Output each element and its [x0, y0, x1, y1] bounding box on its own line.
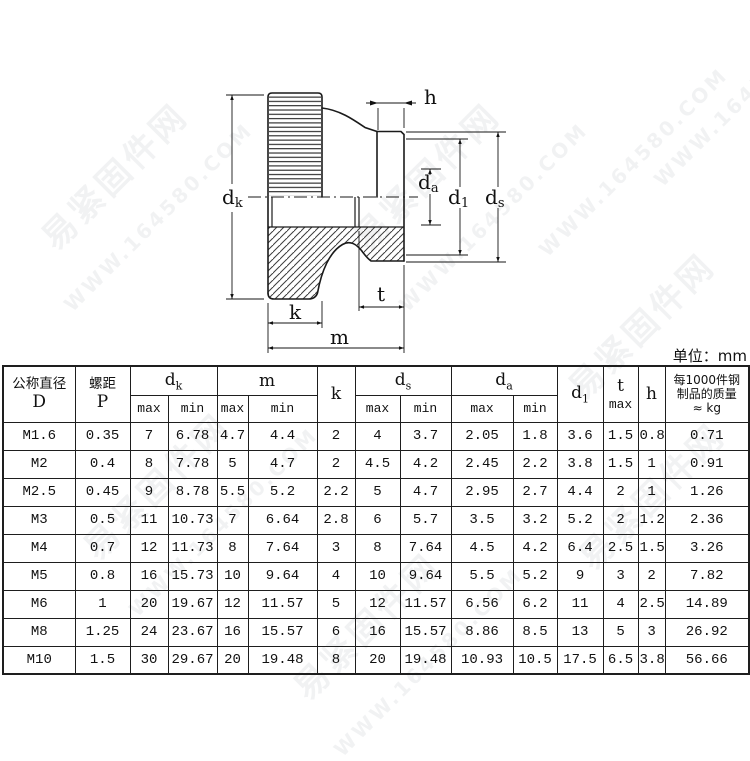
value-cell: 12: [130, 534, 168, 562]
header-nominal-diameter: 公称直径 D: [3, 366, 75, 422]
spec-table-body: M1.60.3576.784.74.4243.72.051.83.61.50.8…: [3, 422, 749, 674]
value-cell: 7.82: [665, 562, 749, 590]
thread-lines: [268, 197, 404, 227]
value-cell: 4.2: [400, 450, 451, 478]
value-cell: 3.6: [557, 422, 603, 450]
table-row: M101.53029.672019.4882019.4810.9310.517.…: [3, 646, 749, 674]
header-mass-line2: 制品的质量: [667, 387, 748, 401]
value-cell: 1.5: [75, 646, 130, 674]
header-m-max: max: [217, 395, 248, 422]
value-cell: 1.5: [603, 450, 638, 478]
value-cell: 5: [355, 478, 400, 506]
value-cell: 2.2: [317, 478, 355, 506]
value-cell: 2.2: [513, 450, 557, 478]
header-t-max: max: [605, 397, 637, 412]
value-cell: 19.48: [400, 646, 451, 674]
header-ds-max: max: [355, 395, 400, 422]
value-cell: 11.73: [168, 534, 217, 562]
value-cell: 5: [603, 618, 638, 646]
header-dk-min: min: [168, 395, 217, 422]
value-cell: 0.7: [75, 534, 130, 562]
header-mass: 每1000件钢 制品的质量 ≈ kg: [665, 366, 749, 422]
value-cell: 4.7: [248, 450, 317, 478]
label-h: h: [424, 85, 437, 109]
value-cell: 30: [130, 646, 168, 674]
value-cell: 23.67: [168, 618, 217, 646]
value-cell: 4.5: [451, 534, 513, 562]
value-cell: 19.48: [248, 646, 317, 674]
label-m: m: [330, 325, 349, 349]
size-cell: M2: [3, 450, 75, 478]
value-cell: 2.5: [638, 590, 665, 618]
value-cell: 8.86: [451, 618, 513, 646]
value-cell: 9.64: [400, 562, 451, 590]
value-cell: 10.93: [451, 646, 513, 674]
table-row: M81.252423.671615.5761615.578.868.513532…: [3, 618, 749, 646]
value-cell: 11.57: [400, 590, 451, 618]
value-cell: 2: [603, 506, 638, 534]
value-cell: 29.67: [168, 646, 217, 674]
header-pitch: 螺距 P: [75, 366, 130, 422]
header-pitch-cn: 螺距: [77, 376, 129, 392]
value-cell: 10.5: [513, 646, 557, 674]
value-cell: 2.7: [513, 478, 557, 506]
value-cell: 14.89: [665, 590, 749, 618]
header-t: t max: [603, 366, 638, 422]
label-da: da: [418, 170, 439, 196]
value-cell: 2.8: [317, 506, 355, 534]
technical-drawing: dk k m t h da d1 ds: [0, 0, 750, 362]
value-cell: 2.05: [451, 422, 513, 450]
unit-label: 单位：mm: [641, 345, 747, 365]
value-cell: 4: [317, 562, 355, 590]
value-cell: 0.5: [75, 506, 130, 534]
header-da-min: min: [513, 395, 557, 422]
header-dk-max: max: [130, 395, 168, 422]
value-cell: 1: [638, 478, 665, 506]
value-cell: 5: [317, 590, 355, 618]
value-cell: 4.5: [355, 450, 400, 478]
value-cell: 2.36: [665, 506, 749, 534]
value-cell: 5.2: [513, 562, 557, 590]
value-cell: 0.45: [75, 478, 130, 506]
value-cell: 11: [130, 506, 168, 534]
value-cell: 8: [130, 450, 168, 478]
value-cell: 9: [130, 478, 168, 506]
value-cell: 4.4: [248, 422, 317, 450]
value-cell: 7: [130, 422, 168, 450]
value-cell: 26.92: [665, 618, 749, 646]
value-cell: 0.71: [665, 422, 749, 450]
header-group-dk: dk: [130, 366, 217, 395]
header-m-min: min: [248, 395, 317, 422]
value-cell: 11.57: [248, 590, 317, 618]
table-row: M2.50.4598.785.55.22.254.72.952.74.4211.…: [3, 478, 749, 506]
size-cell: M2.5: [3, 478, 75, 506]
size-cell: M3: [3, 506, 75, 534]
table-row: M50.81615.73109.644109.645.55.29327.82: [3, 562, 749, 590]
table-row: M612019.671211.5751211.576.566.21142.514…: [3, 590, 749, 618]
value-cell: 15.73: [168, 562, 217, 590]
header-pitch-symbol: P: [77, 392, 129, 412]
value-cell: 2.45: [451, 450, 513, 478]
value-cell: 12: [217, 590, 248, 618]
value-cell: 1.26: [665, 478, 749, 506]
value-cell: 19.67: [168, 590, 217, 618]
value-cell: 1.5: [603, 422, 638, 450]
value-cell: 1.25: [75, 618, 130, 646]
value-cell: 8.78: [168, 478, 217, 506]
size-cell: M10: [3, 646, 75, 674]
value-cell: 15.57: [400, 618, 451, 646]
label-dk: dk: [222, 185, 243, 211]
value-cell: 20: [217, 646, 248, 674]
value-cell: 1.2: [638, 506, 665, 534]
table-row: M20.487.7854.724.54.22.452.23.81.510.91: [3, 450, 749, 478]
value-cell: 5: [217, 450, 248, 478]
value-cell: 8.5: [513, 618, 557, 646]
value-cell: 6: [355, 506, 400, 534]
knurl-pattern: [269, 96, 321, 196]
value-cell: 2.95: [451, 478, 513, 506]
value-cell: 6.4: [557, 534, 603, 562]
value-cell: 15.57: [248, 618, 317, 646]
value-cell: 17.5: [557, 646, 603, 674]
label-t: t: [377, 282, 385, 306]
label-d1: d1: [448, 185, 469, 211]
value-cell: 1: [638, 450, 665, 478]
value-cell: 6.5: [603, 646, 638, 674]
value-cell: 2: [317, 422, 355, 450]
size-cell: M6: [3, 590, 75, 618]
value-cell: 16: [217, 618, 248, 646]
value-cell: 3.7: [400, 422, 451, 450]
value-cell: 0.4: [75, 450, 130, 478]
value-cell: 10: [217, 562, 248, 590]
value-cell: 3: [603, 562, 638, 590]
value-cell: 2: [317, 450, 355, 478]
value-cell: 3.2: [513, 506, 557, 534]
value-cell: 9: [557, 562, 603, 590]
value-cell: 7.64: [248, 534, 317, 562]
value-cell: 3.5: [451, 506, 513, 534]
value-cell: 3.26: [665, 534, 749, 562]
value-cell: 12: [355, 590, 400, 618]
label-k: k: [289, 300, 302, 324]
value-cell: 13: [557, 618, 603, 646]
size-cell: M5: [3, 562, 75, 590]
value-cell: 8: [317, 646, 355, 674]
value-cell: 11: [557, 590, 603, 618]
value-cell: 5.2: [557, 506, 603, 534]
value-cell: 24: [130, 618, 168, 646]
size-cell: M1.6: [3, 422, 75, 450]
value-cell: 5.2: [248, 478, 317, 506]
header-d1: d1: [557, 366, 603, 422]
value-cell: 9.64: [248, 562, 317, 590]
value-cell: 7: [217, 506, 248, 534]
header-ds-min: min: [400, 395, 451, 422]
value-cell: 10: [355, 562, 400, 590]
value-cell: 8: [217, 534, 248, 562]
size-cell: M4: [3, 534, 75, 562]
value-cell: 10.73: [168, 506, 217, 534]
value-cell: 3: [317, 534, 355, 562]
value-cell: 7.64: [400, 534, 451, 562]
header-group-m: m: [217, 366, 317, 395]
value-cell: 16: [355, 618, 400, 646]
table-row: M30.51110.7376.642.865.73.53.25.221.22.3…: [3, 506, 749, 534]
table-row: M40.71211.7387.64387.644.54.26.42.51.53.…: [3, 534, 749, 562]
value-cell: 20: [130, 590, 168, 618]
value-cell: 4.7: [400, 478, 451, 506]
value-cell: 1: [75, 590, 130, 618]
value-cell: 4: [603, 590, 638, 618]
value-cell: 3.8: [638, 646, 665, 674]
value-cell: 8: [355, 534, 400, 562]
value-cell: 1.8: [513, 422, 557, 450]
header-nominal-diameter-symbol: D: [5, 392, 74, 412]
value-cell: 4.7: [217, 422, 248, 450]
header-mass-line1: 每1000件钢: [667, 373, 748, 387]
value-cell: 2: [638, 562, 665, 590]
value-cell: 4.2: [513, 534, 557, 562]
value-cell: 0.35: [75, 422, 130, 450]
header-t-symbol: t: [617, 376, 624, 396]
value-cell: 4: [355, 422, 400, 450]
value-cell: 2: [603, 478, 638, 506]
header-h: h: [638, 366, 665, 422]
value-cell: 16: [130, 562, 168, 590]
header-mass-line3: ≈ kg: [667, 401, 748, 415]
value-cell: 7.78: [168, 450, 217, 478]
header-nominal-diameter-cn: 公称直径: [5, 376, 74, 392]
value-cell: 20: [355, 646, 400, 674]
value-cell: 0.8: [75, 562, 130, 590]
spec-table: 公称直径 D 螺距 P dk m k ds da d1 t max h 每100…: [2, 365, 750, 675]
header-da-max: max: [451, 395, 513, 422]
value-cell: 3.8: [557, 450, 603, 478]
value-cell: 2.5: [603, 534, 638, 562]
value-cell: 6.78: [168, 422, 217, 450]
value-cell: 6: [317, 618, 355, 646]
value-cell: 6.2: [513, 590, 557, 618]
header-group-da: da: [451, 366, 557, 395]
value-cell: 0.91: [665, 450, 749, 478]
size-cell: M8: [3, 618, 75, 646]
value-cell: 1.5: [638, 534, 665, 562]
value-cell: 0.8: [638, 422, 665, 450]
value-cell: 5.5: [451, 562, 513, 590]
value-cell: 6.56: [451, 590, 513, 618]
label-ds: ds: [485, 185, 504, 211]
value-cell: 5.5: [217, 478, 248, 506]
header-group-ds: ds: [355, 366, 451, 395]
header-k: k: [317, 366, 355, 422]
value-cell: 6.64: [248, 506, 317, 534]
value-cell: 56.66: [665, 646, 749, 674]
value-cell: 3: [638, 618, 665, 646]
value-cell: 5.7: [400, 506, 451, 534]
table-row: M1.60.3576.784.74.4243.72.051.83.61.50.8…: [3, 422, 749, 450]
value-cell: 4.4: [557, 478, 603, 506]
